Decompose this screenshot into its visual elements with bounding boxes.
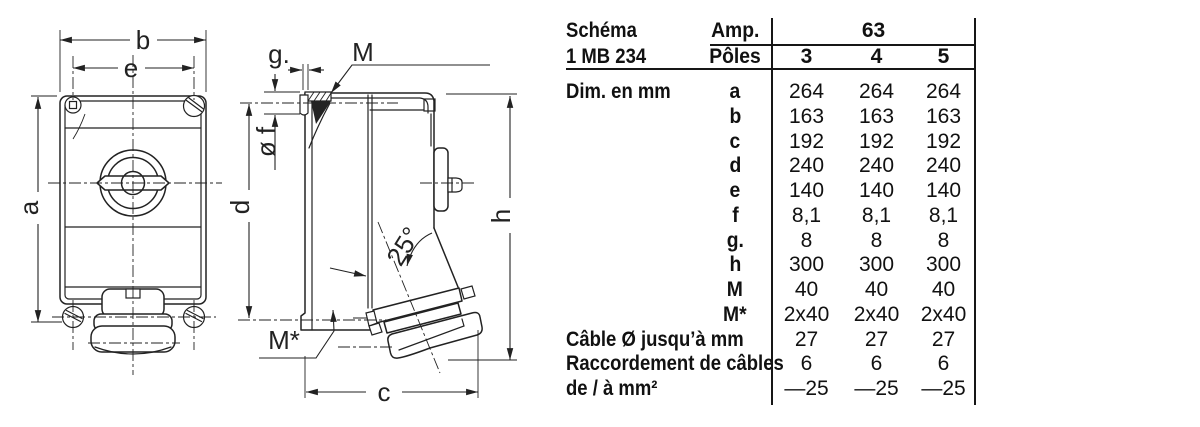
poles-label: Pôles: [709, 44, 761, 69]
dim-label-d: d: [225, 200, 255, 214]
dimension-e: e: [73, 53, 194, 83]
dim-label-angle: 25°: [380, 222, 426, 271]
dim-label-M: M: [352, 37, 374, 67]
poles-4: 4: [843, 44, 910, 69]
catalog-page: { "drawing": { "front_view": { "width_ou…: [0, 0, 1200, 427]
leader-arrow: [330, 268, 366, 276]
dim-label-e: e: [124, 53, 138, 83]
front-view: b e a: [14, 25, 206, 354]
dim-label-M-star: M*: [268, 325, 300, 355]
latch-screw: [448, 178, 462, 192]
dimension-g: g.: [268, 39, 324, 90]
schema-label: Schéma: [566, 18, 637, 44]
dim-label-b: b: [136, 25, 150, 55]
poles-3: 3: [770, 44, 843, 69]
dim-label-g: g.: [268, 39, 290, 69]
amp-label: Amp.: [711, 18, 759, 44]
table-rule-amp: [710, 44, 975, 46]
dimension-M: M: [331, 37, 490, 93]
poles-5: 5: [910, 44, 977, 69]
schema-value: 1 MB 234: [566, 44, 646, 69]
dim-unit-label: Dim. en mm: [566, 80, 671, 105]
table-vertical-rule-left: [771, 18, 773, 405]
dimension-M-star: M*: [259, 310, 334, 358]
dim-label-h: h: [486, 209, 516, 223]
amp-value: 63: [770, 18, 977, 44]
side-view: M M* g. ø f d: [225, 37, 517, 407]
dimension-f: ø f: [251, 74, 300, 170]
technical-drawing: b e a: [0, 0, 555, 427]
socket-outlet: [366, 228, 482, 358]
dim-label-a: a: [14, 200, 44, 215]
dimension-a: a: [14, 96, 62, 322]
dim-label-c: c: [378, 377, 391, 407]
latch-block: [434, 148, 448, 211]
dim-label-f: ø f: [251, 126, 281, 157]
table-vertical-rule-right: [974, 18, 976, 405]
